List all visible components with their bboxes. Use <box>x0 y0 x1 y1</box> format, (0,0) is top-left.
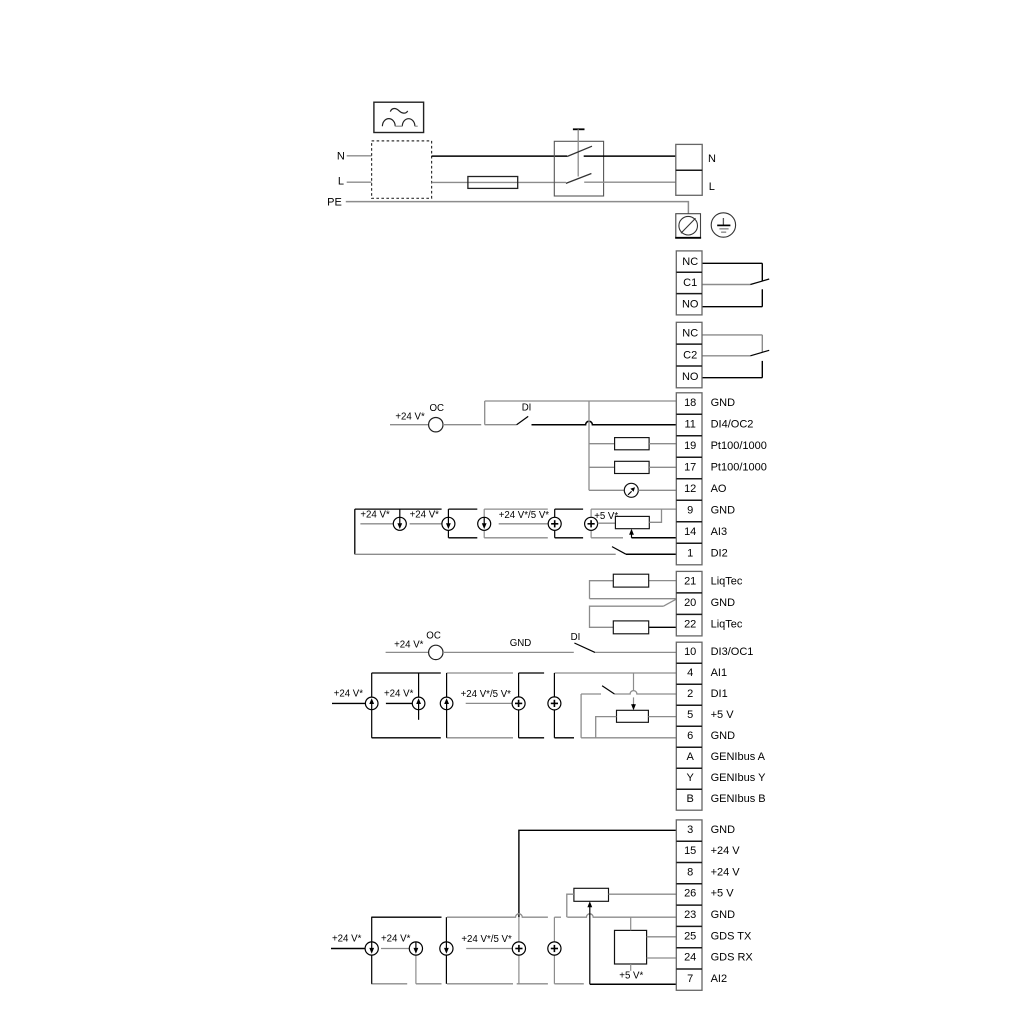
svg-text:B: B <box>687 793 694 805</box>
svg-text:DI3/OC1: DI3/OC1 <box>711 646 754 658</box>
svg-text:GND: GND <box>711 909 736 921</box>
svg-text:25: 25 <box>684 930 696 942</box>
svg-text:GND: GND <box>711 597 736 609</box>
svg-text:AI3: AI3 <box>711 526 728 538</box>
svg-text:+24 V: +24 V <box>711 845 741 857</box>
svg-text:26: 26 <box>684 888 696 900</box>
svg-text:OC: OC <box>430 403 445 414</box>
svg-text:+24 V*: +24 V* <box>394 640 424 651</box>
svg-text:4: 4 <box>687 667 693 679</box>
svg-text:15: 15 <box>684 845 696 857</box>
svg-text:DI: DI <box>571 632 581 643</box>
svg-text:NO: NO <box>682 371 699 383</box>
svg-text:NC: NC <box>682 328 698 340</box>
svg-text:2: 2 <box>687 688 693 700</box>
svg-text:5: 5 <box>687 709 693 721</box>
svg-text:14: 14 <box>684 526 696 538</box>
svg-text:LiqTec: LiqTec <box>711 618 743 630</box>
svg-text:+5 V*: +5 V* <box>619 971 643 982</box>
svg-text:DI: DI <box>522 403 532 414</box>
svg-text:GND: GND <box>711 397 736 409</box>
svg-text:+24 V*: +24 V* <box>332 934 362 945</box>
svg-text:3: 3 <box>687 824 693 836</box>
svg-text:18: 18 <box>684 397 696 409</box>
svg-text:C1: C1 <box>683 277 697 289</box>
svg-text:+24 V: +24 V <box>711 866 741 878</box>
svg-text:+24 V*: +24 V* <box>334 689 364 700</box>
svg-text:GENIbus B: GENIbus B <box>711 793 766 805</box>
svg-text:PE: PE <box>327 197 342 209</box>
svg-text:+24 V*: +24 V* <box>381 934 411 945</box>
svg-text:22: 22 <box>684 618 696 630</box>
svg-text:9: 9 <box>687 504 693 516</box>
svg-text:GENIbus A: GENIbus A <box>711 751 766 763</box>
svg-text:AI2: AI2 <box>711 973 728 985</box>
svg-text:19: 19 <box>684 440 696 452</box>
svg-text:1: 1 <box>687 547 693 559</box>
svg-text:GND: GND <box>510 638 532 649</box>
svg-text:L: L <box>709 181 715 193</box>
svg-text:Pt100/1000: Pt100/1000 <box>711 440 767 452</box>
svg-text:12: 12 <box>684 483 696 495</box>
svg-text:DI2: DI2 <box>711 547 728 559</box>
svg-text:17: 17 <box>684 461 696 473</box>
svg-text:OC: OC <box>426 631 441 642</box>
svg-text:GDS RX: GDS RX <box>711 952 754 964</box>
svg-text:N: N <box>708 153 716 165</box>
svg-text:10: 10 <box>684 646 696 658</box>
svg-text:Pt100/1000: Pt100/1000 <box>711 461 767 473</box>
svg-text:+24 V*/5 V*: +24 V*/5 V* <box>461 934 512 945</box>
svg-text:GND: GND <box>711 824 736 836</box>
svg-text:8: 8 <box>687 866 693 878</box>
svg-text:A: A <box>687 751 695 763</box>
svg-text:+24 V*/5 V*: +24 V*/5 V* <box>461 689 512 700</box>
svg-text:LiqTec: LiqTec <box>711 575 743 587</box>
svg-text:+24 V*/5 V*: +24 V*/5 V* <box>499 510 550 521</box>
svg-text:20: 20 <box>684 597 696 609</box>
svg-text:AI1: AI1 <box>711 667 728 679</box>
svg-text:23: 23 <box>684 909 696 921</box>
svg-text:GDS TX: GDS TX <box>711 930 752 942</box>
svg-text:11: 11 <box>684 418 695 430</box>
svg-text:24: 24 <box>684 952 696 964</box>
svg-text:21: 21 <box>684 575 696 587</box>
svg-text:GENIbus Y: GENIbus Y <box>711 772 766 784</box>
svg-text:+5 V*: +5 V* <box>594 511 618 522</box>
svg-text:+24 V*: +24 V* <box>410 510 440 521</box>
svg-text:GND: GND <box>711 730 736 742</box>
svg-text:6: 6 <box>687 730 693 742</box>
svg-text:L: L <box>338 176 344 188</box>
svg-text:Y: Y <box>687 772 695 784</box>
svg-text:NC: NC <box>682 256 698 268</box>
svg-text:GND: GND <box>711 504 736 516</box>
svg-text:C2: C2 <box>683 349 697 361</box>
svg-text:+24 V*: +24 V* <box>395 412 425 423</box>
svg-text:7: 7 <box>687 973 693 985</box>
svg-text:+24 V*: +24 V* <box>384 689 414 700</box>
svg-text:DI1: DI1 <box>711 688 728 700</box>
svg-text:NO: NO <box>682 299 699 311</box>
svg-text:+24 V*: +24 V* <box>360 510 390 521</box>
svg-text:DI4/OC2: DI4/OC2 <box>711 418 754 430</box>
svg-text:AO: AO <box>711 483 727 495</box>
svg-text:N: N <box>337 151 345 163</box>
svg-text:+5 V: +5 V <box>711 888 735 900</box>
svg-text:+5 V: +5 V <box>711 709 735 721</box>
